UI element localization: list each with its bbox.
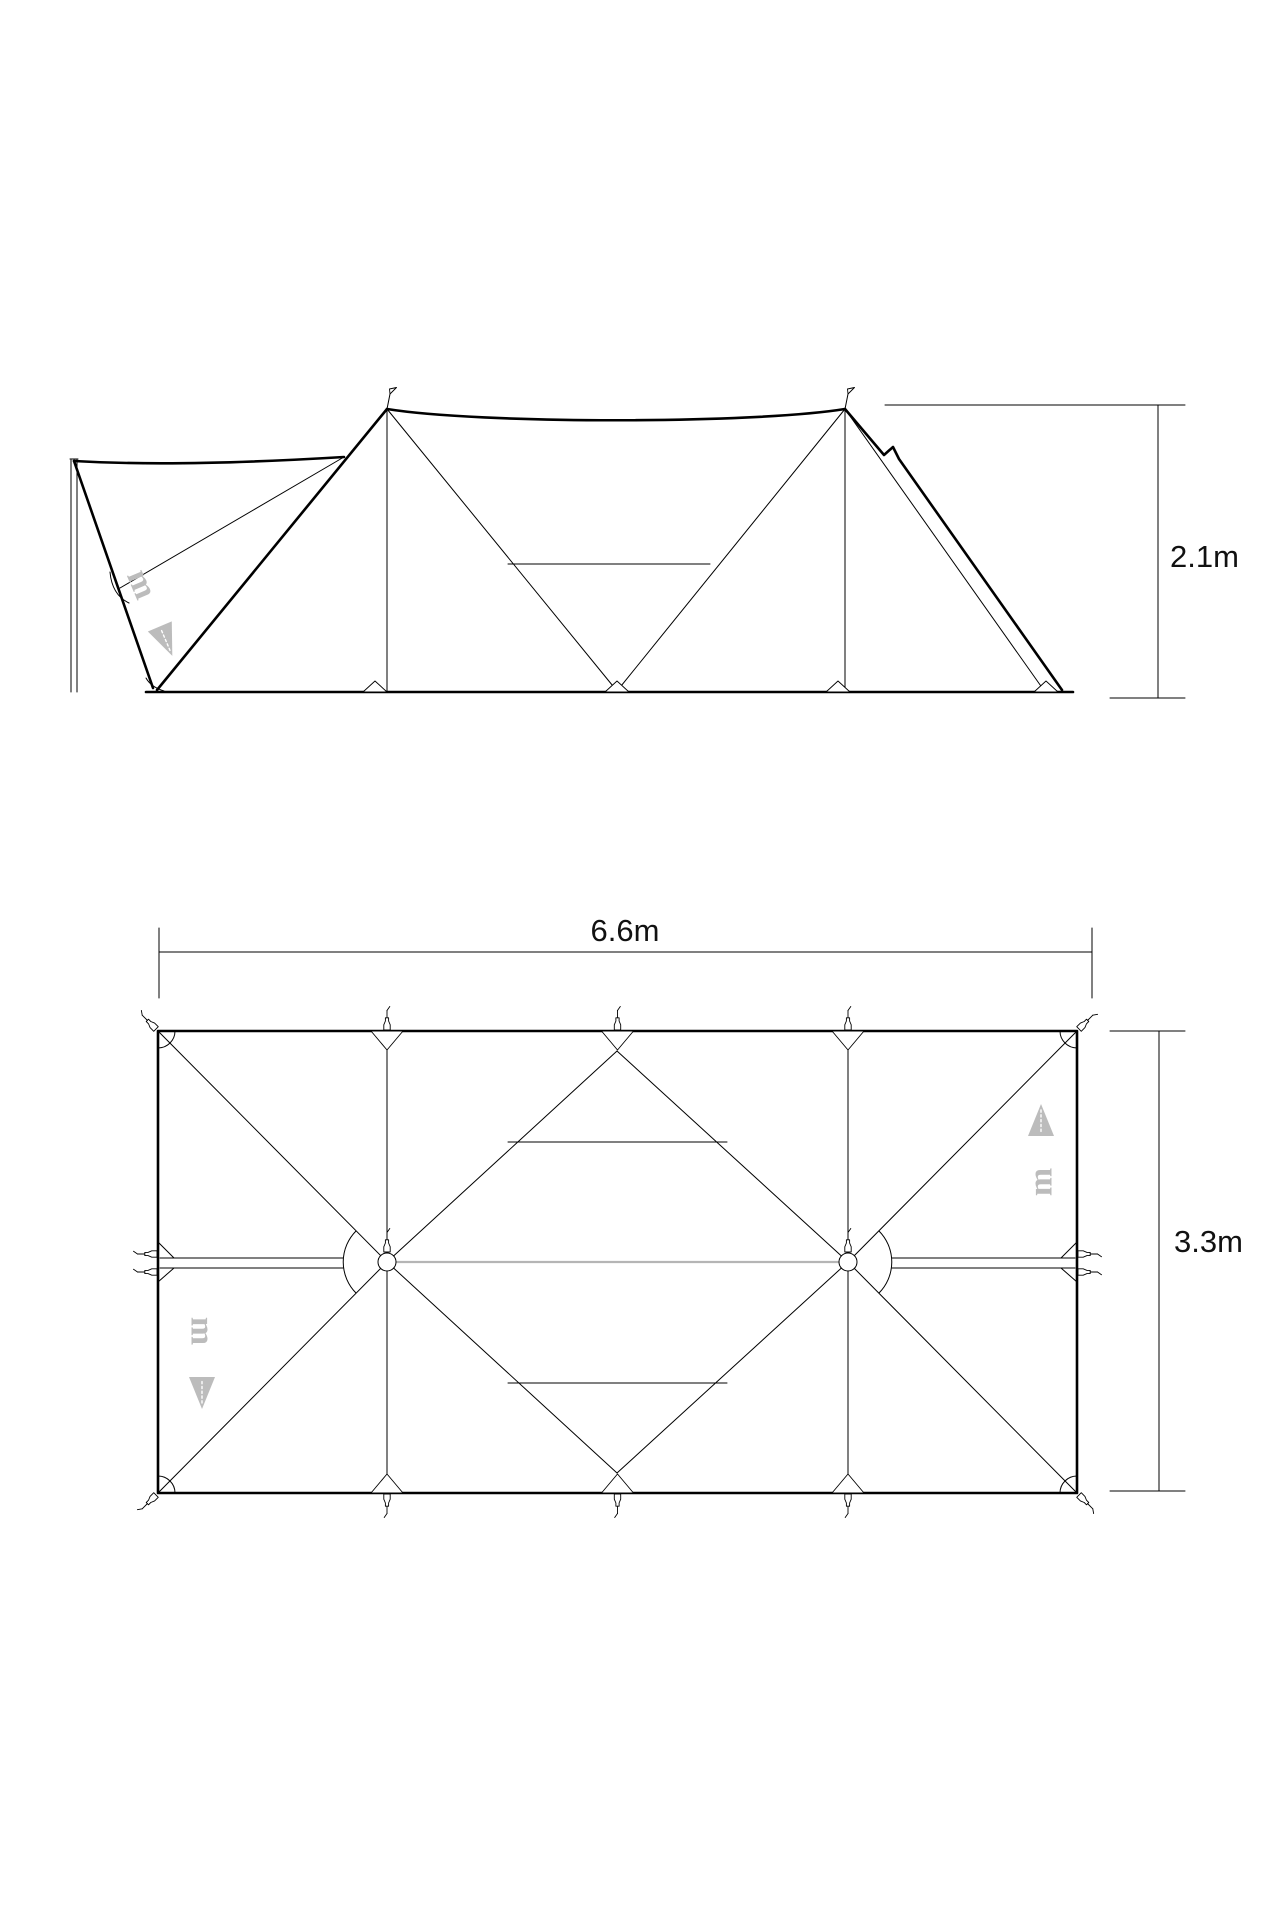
tent-peg-icon <box>137 1010 158 1031</box>
tent-peg-icon <box>1078 1251 1102 1257</box>
tent-peg-icon <box>384 1494 390 1518</box>
stake-marker <box>1034 681 1058 692</box>
brand-triangle-icon <box>189 1377 215 1409</box>
height-dimension-label: 2.1m <box>1170 539 1239 574</box>
depth-dimension: 3.3m <box>1110 1031 1243 1491</box>
brand-letter: m <box>184 1317 221 1345</box>
height-dimension: 2.1m <box>885 405 1239 698</box>
tent-peg-icon <box>384 1229 390 1253</box>
width-dimension-label: 6.6m <box>591 913 660 948</box>
pole-arc <box>879 1231 892 1293</box>
brand-watermark-plan-bottom-left: m <box>184 1317 221 1409</box>
tent-peg-icon <box>845 1007 851 1031</box>
pole-marker <box>839 1253 857 1271</box>
tent-fly-outline <box>157 409 1062 690</box>
stake-marker <box>826 681 850 692</box>
awning-canopy <box>74 457 344 691</box>
tent-peg-icon <box>1077 1493 1098 1514</box>
peak-flag-icon <box>845 388 855 410</box>
tieout-notches-bottom <box>371 1474 864 1493</box>
tent-peg-icon <box>134 1251 158 1257</box>
width-dimension: 6.6m <box>159 913 1092 998</box>
tent-peg-icon <box>845 1229 851 1253</box>
brand-watermark-plan-top-right: m <box>1023 1104 1060 1196</box>
tent-spec-sheet: 2.1m m 6.6m <box>0 0 1280 1920</box>
awning-pole <box>70 459 78 692</box>
side-elevation-view: 2.1m m <box>70 388 1239 699</box>
pole-marker <box>378 1253 396 1271</box>
tent-peg-icon <box>1077 1010 1098 1031</box>
brand-triangle-icon <box>1028 1104 1054 1136</box>
tent-peg-icon <box>845 1494 851 1518</box>
stake-marker <box>363 681 387 692</box>
brand-letter: m <box>119 564 164 605</box>
pole-arc <box>343 1231 356 1293</box>
stake-marker <box>605 681 629 692</box>
tent-peg-icon <box>1078 1269 1102 1275</box>
inner-structure-lines <box>387 409 845 691</box>
depth-dimension-label: 3.3m <box>1174 1224 1243 1259</box>
tent-peg-icon <box>384 1007 390 1031</box>
brand-watermark-side: m <box>119 564 189 663</box>
floor-plan-view: 6.6m <box>134 913 1243 1518</box>
brand-letter: m <box>1023 1168 1060 1196</box>
tent-dimension-drawing: 2.1m m 6.6m <box>0 0 1280 1920</box>
tieout-notches-top <box>371 1031 864 1050</box>
tent-peg-icon <box>614 1007 620 1031</box>
tent-peg-icon <box>614 1494 620 1518</box>
brand-triangle-icon <box>148 621 184 661</box>
peak-flag-icon <box>387 388 397 410</box>
tent-peg-icon <box>137 1493 158 1514</box>
tent-peg-icon <box>134 1269 158 1275</box>
